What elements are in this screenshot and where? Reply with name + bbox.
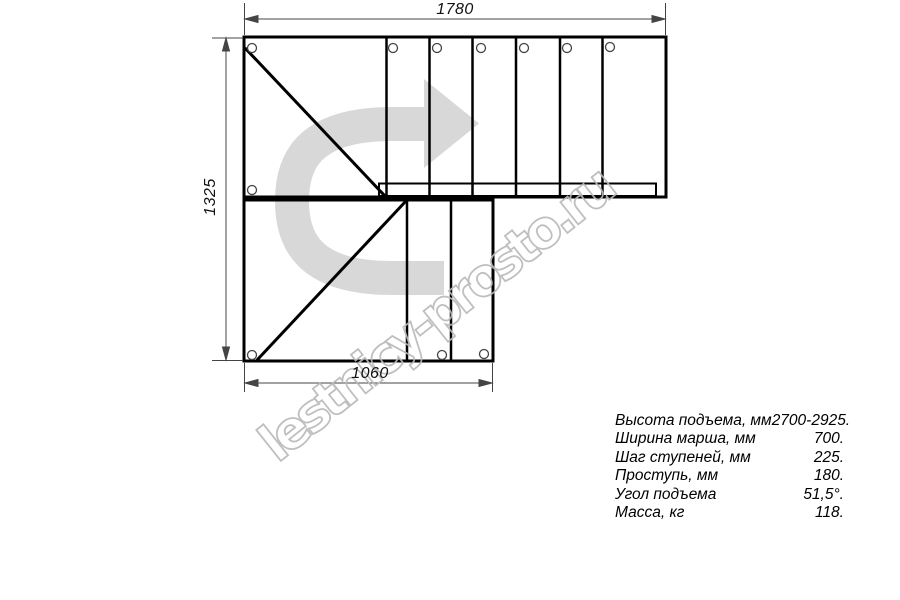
spec-row: Угол подъема 51,5°.	[615, 486, 844, 504]
stair-drawing-page: lestnicy-prosto.ru 1780 1325 1060 Высота…	[0, 0, 900, 600]
spec-row: Ширина марша, мм 700.	[615, 430, 844, 448]
spec-value: 225.	[814, 449, 844, 467]
spec-label: Масса, кг	[615, 504, 684, 522]
dimension-left-label: 1325	[202, 178, 220, 216]
spec-value: 51,5°.	[803, 486, 844, 504]
spec-value: 180.	[814, 467, 844, 485]
dimension-bottom-label: 1060	[351, 365, 389, 383]
spec-value: 118.	[815, 504, 844, 522]
spec-row: Проступь, мм 180.	[615, 467, 844, 485]
spec-label: Шаг ступеней, мм	[615, 449, 751, 467]
spec-label: Проступь, мм	[615, 467, 718, 485]
spec-row: Шаг ступеней, мм 225.	[615, 449, 844, 467]
spec-label: Угол подъема	[615, 486, 716, 504]
spec-label: Ширина марша, мм	[615, 430, 756, 448]
spec-row: Высота подъема, мм 2700-2925.	[615, 412, 844, 430]
spec-value: 700.	[814, 430, 844, 448]
spec-value: 2700-2925.	[772, 412, 850, 430]
spec-table: Высота подъема, мм 2700-2925. Ширина мар…	[615, 412, 844, 522]
spec-label: Высота подъема, мм	[615, 412, 772, 430]
spec-row: Масса, кг 118.	[615, 504, 844, 522]
dimension-top-label: 1780	[436, 1, 474, 19]
